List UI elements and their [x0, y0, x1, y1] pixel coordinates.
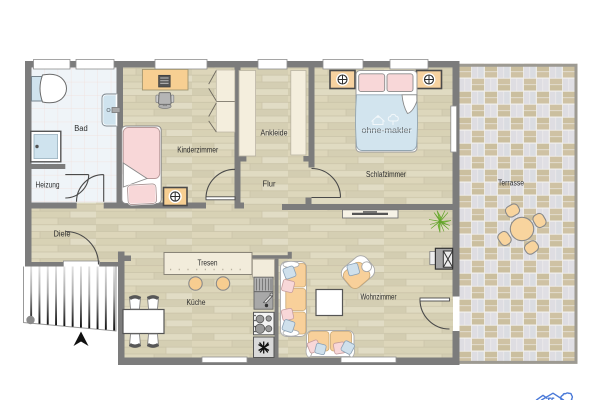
svg-text:Bad: Bad	[74, 124, 88, 133]
svg-text:Wohnzimmer: Wohnzimmer	[361, 293, 397, 302]
svg-text:Küche: Küche	[187, 298, 206, 307]
svg-text:Kinderzimmer: Kinderzimmer	[177, 146, 218, 155]
svg-text:Schlafzimmer: Schlafzimmer	[366, 170, 406, 179]
svg-text:Tresen: Tresen	[198, 259, 218, 268]
svg-text:Ankleide: Ankleide	[261, 129, 288, 138]
svg-text:Flur: Flur	[263, 180, 276, 189]
svg-text:Diele: Diele	[54, 230, 72, 239]
svg-text:Terrasse: Terrasse	[498, 179, 524, 188]
svg-text:Heizung: Heizung	[36, 181, 60, 190]
